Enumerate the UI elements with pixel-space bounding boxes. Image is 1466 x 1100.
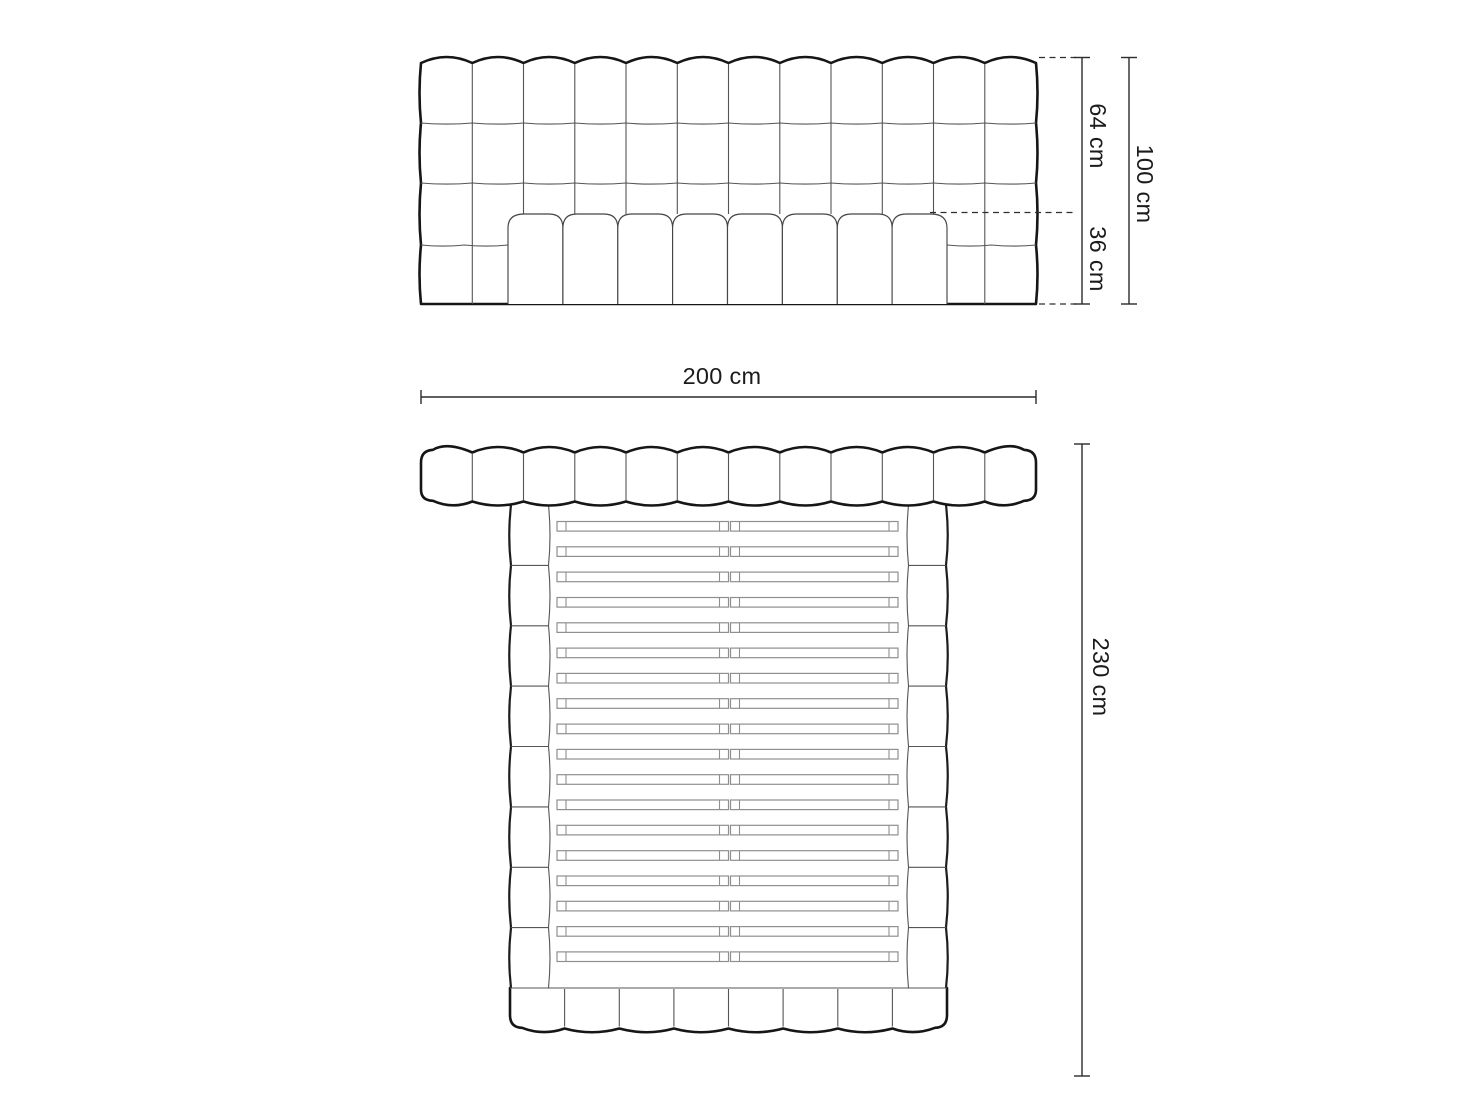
slat-right xyxy=(731,572,899,582)
slat-right xyxy=(731,547,899,557)
slat-right xyxy=(731,927,899,937)
slat-right xyxy=(731,699,899,709)
slat-left xyxy=(557,522,729,532)
slat-left xyxy=(557,699,729,709)
diagram: 64 cm 36 cm 100 cm 200 cm 230 cm xyxy=(0,0,1466,1100)
slat-right xyxy=(731,952,899,962)
bed-dimension-diagram: 64 cm 36 cm 100 cm 200 cm 230 cm xyxy=(0,0,1466,1100)
slat-right xyxy=(731,901,899,911)
top-view-headboard xyxy=(421,446,1036,505)
dim-64-label: 64 cm xyxy=(1085,103,1111,169)
mattress-segment xyxy=(892,214,947,304)
slat-right xyxy=(731,775,899,785)
mattress-segment xyxy=(508,214,563,304)
slat-right xyxy=(731,522,899,532)
slat-left xyxy=(557,800,729,810)
slat-left xyxy=(557,876,729,886)
mattress-segment xyxy=(618,214,673,304)
dim-36-label: 36 cm xyxy=(1085,226,1111,292)
length-dimension xyxy=(1074,444,1090,1076)
top-view-footboard xyxy=(510,988,947,1032)
mattress-segment xyxy=(728,214,783,304)
slat-left xyxy=(557,673,729,683)
slat-right xyxy=(731,825,899,835)
slat-right xyxy=(731,598,899,608)
slat-left xyxy=(557,598,729,608)
slat-left xyxy=(557,749,729,759)
mattress-segment xyxy=(837,214,892,304)
top-view-slats xyxy=(557,522,898,962)
slat-right xyxy=(731,648,899,658)
slat-right xyxy=(731,800,899,810)
slat-left xyxy=(557,572,729,582)
dim-230-label: 230 cm xyxy=(1088,638,1114,717)
front-view xyxy=(420,57,1038,304)
slat-right xyxy=(731,673,899,683)
slat-right xyxy=(731,876,899,886)
mattress-segment xyxy=(563,214,618,304)
slat-left xyxy=(557,952,729,962)
dim-100-label: 100 cm xyxy=(1132,145,1158,224)
slat-left xyxy=(557,724,729,734)
slat-left xyxy=(557,775,729,785)
dim-200-label: 200 cm xyxy=(683,363,762,389)
slat-left xyxy=(557,648,729,658)
mattress-segment xyxy=(673,214,728,304)
slat-left xyxy=(557,547,729,557)
width-dimension xyxy=(421,390,1036,404)
slat-right xyxy=(731,749,899,759)
right-rail-inner-edge xyxy=(907,505,909,988)
slat-right xyxy=(731,851,899,861)
slat-left xyxy=(557,901,729,911)
slat-left xyxy=(557,825,729,835)
slat-left xyxy=(557,623,729,633)
mattress-segment xyxy=(782,214,837,304)
slat-left xyxy=(557,927,729,937)
left-rail-outer-edge xyxy=(509,505,511,988)
slat-right xyxy=(731,724,899,734)
left-rail-inner-edge xyxy=(549,505,551,988)
right-rail-outer-edge xyxy=(946,505,948,988)
slat-right xyxy=(731,623,899,633)
slat-left xyxy=(557,851,729,861)
